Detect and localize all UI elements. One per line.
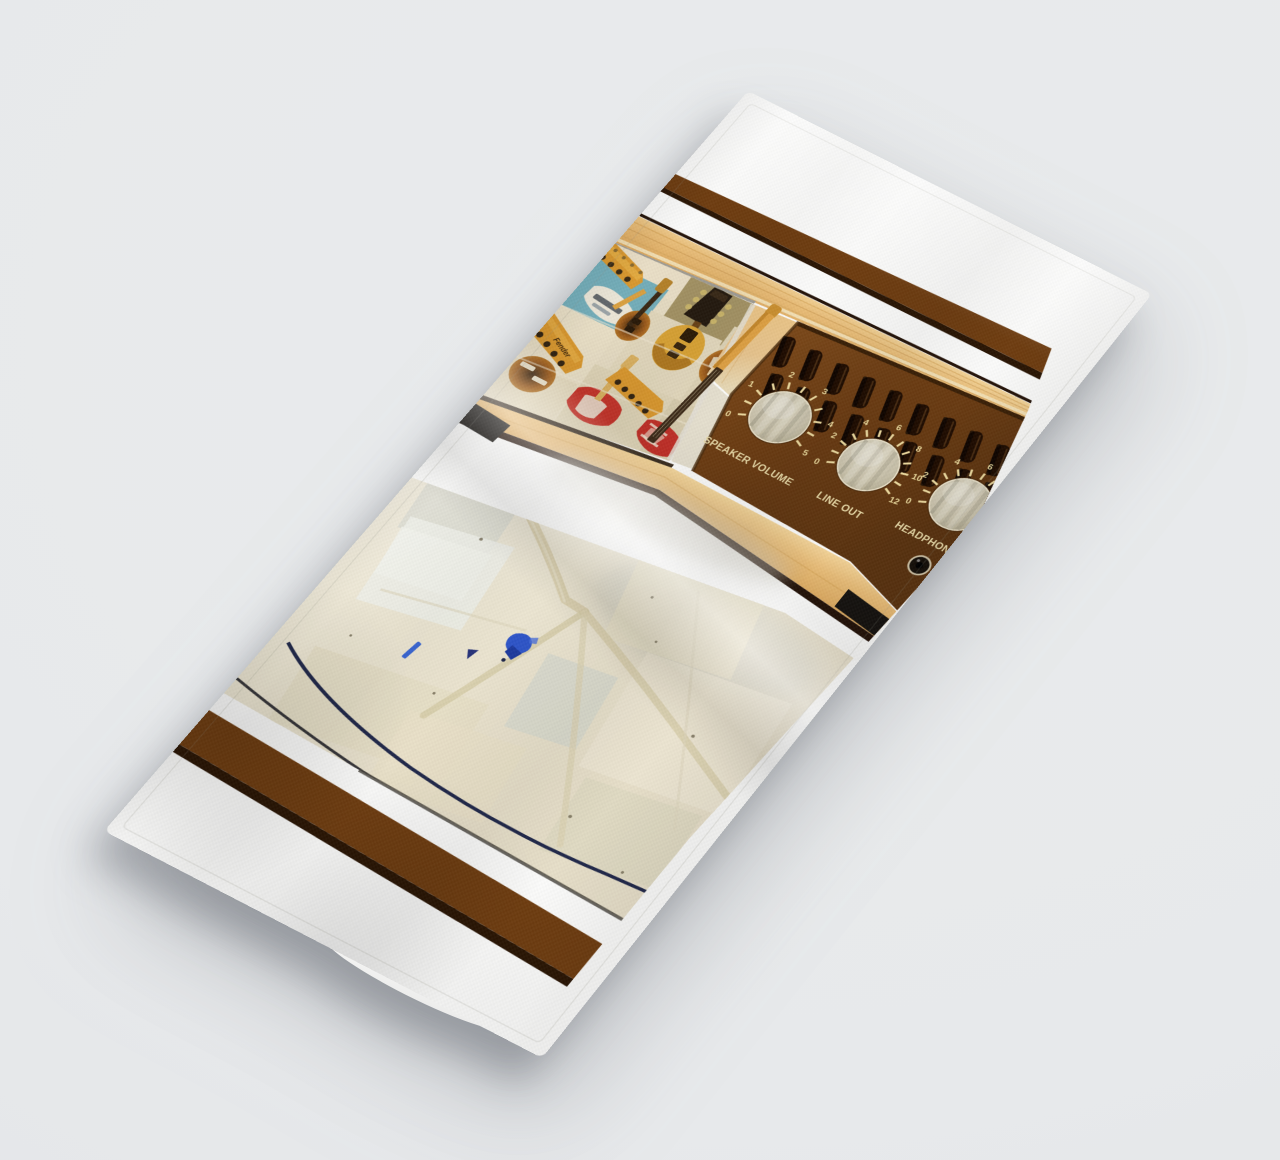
svg-text:12: 12: [979, 534, 994, 546]
svg-text:10: 10: [1002, 511, 1017, 523]
svg-text:8: 8: [1005, 483, 1015, 493]
